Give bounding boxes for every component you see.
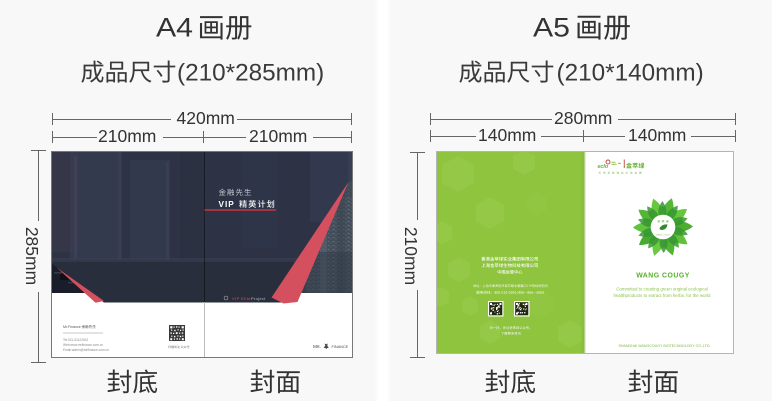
svg-text:Tel:021-51122601: Tel:021-51122601 [63,338,89,342]
svg-text:SHANGHAI WANGCOUGY BIOTECHNOLO: SHANGHAI WANGCOUGY BIOTECHNOLOGY CO.,LTD [618,344,710,348]
svg-text:(210*140mm): (210*140mm) [557,60,704,87]
svg-text:(210*285mm): (210*285mm) [177,60,324,87]
svg-text:Mr.Finance: Mr.Finance [63,325,81,329]
svg-text:A4: A4 [156,13,193,43]
svg-text:Project: Project [251,296,266,301]
svg-text:Email:admin@mrfinance.com.cn: Email:admin@mrfinance.com.cn [63,348,109,352]
svg-text:Web:www.mrfinance.com.cn: Web:www.mrfinance.com.cn [63,343,103,347]
svg-text:Committed to creating green or: Committed to creating green original eco… [616,287,708,292]
svg-text:ecfo: ecfo [598,164,609,170]
svg-text:WANG COUGY: WANG COUGY [656,234,671,237]
svg-text:Mʀ.: Mʀ. [313,344,321,350]
svg-text:WANG COUGY: WANG COUGY [636,273,690,280]
svg-text:FINANCE: FINANCE [332,345,349,349]
svg-text:VIP: VIP [219,200,235,209]
svg-text:A5: A5 [533,13,570,43]
svg-text:healthproducts to extract from: healthproducts to extract from herbs. fo… [614,293,711,298]
svg-text:VIP Elite: VIP Elite [232,296,251,301]
